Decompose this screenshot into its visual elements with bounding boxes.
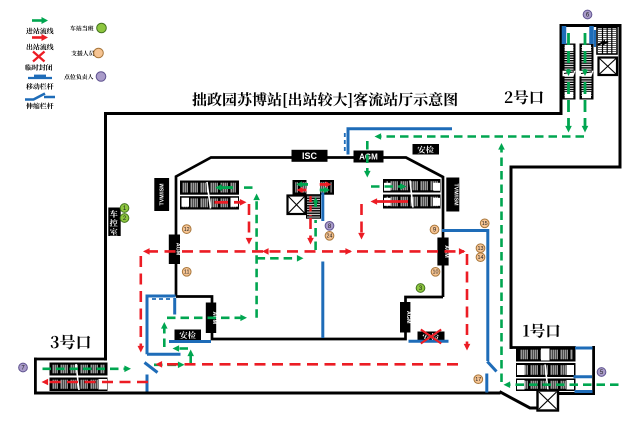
svg-text:TVM/ISM: TVM/ISM (160, 183, 166, 206)
svg-text:11: 11 (184, 270, 190, 276)
svg-text:14: 14 (478, 255, 484, 261)
svg-text:AGM: AGM (405, 311, 411, 324)
svg-text:TVM/ISM: TVM/ISM (453, 183, 459, 206)
svg-text:12: 12 (184, 227, 190, 233)
svg-text:24: 24 (327, 234, 333, 240)
svg-text:10: 10 (433, 270, 439, 276)
svg-text:AGM: AGM (174, 243, 180, 256)
svg-text:AGM: AGM (359, 153, 378, 162)
svg-text:17: 17 (475, 377, 481, 383)
svg-text:ISC: ISC (302, 151, 318, 161)
svg-text:15: 15 (482, 221, 488, 227)
svg-text:13: 13 (478, 246, 484, 252)
